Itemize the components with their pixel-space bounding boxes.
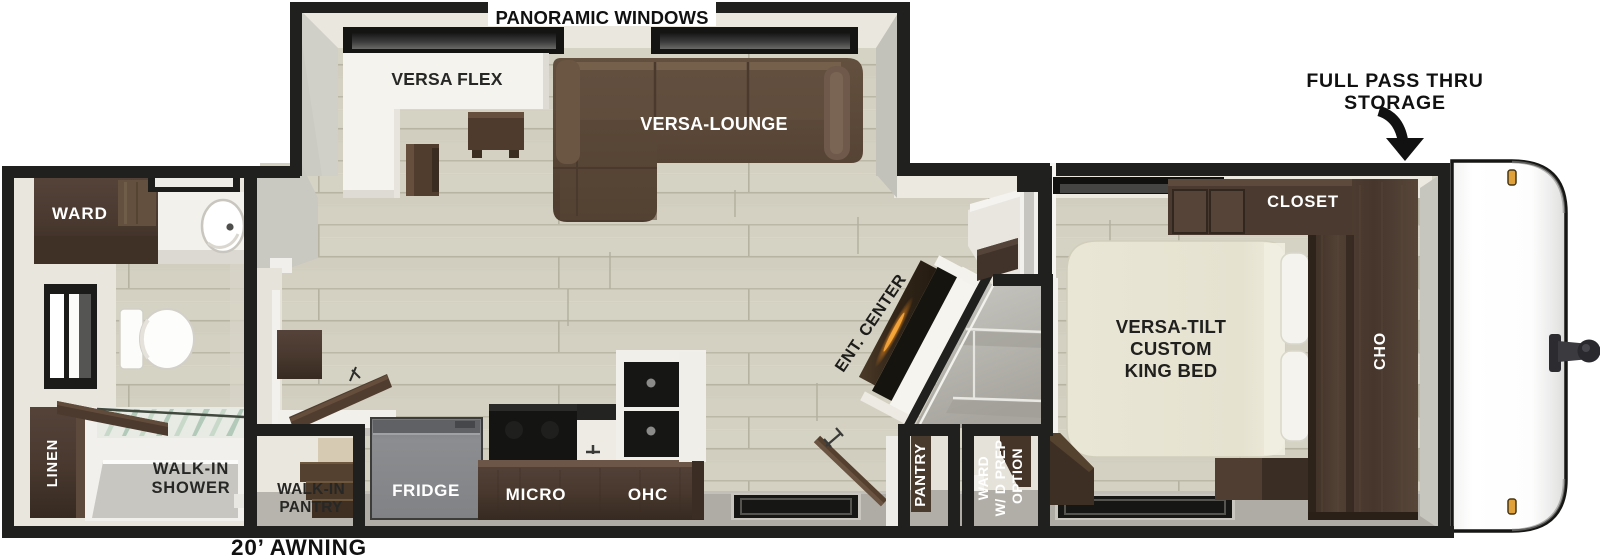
svg-text:PANORAMIC WINDOWS: PANORAMIC WINDOWS	[495, 7, 708, 28]
svg-text:WALK-IN: WALK-IN	[153, 460, 229, 478]
svg-text:VERSA-TILT: VERSA-TILT	[1116, 316, 1227, 337]
svg-text:CHO: CHO	[1372, 332, 1389, 370]
svg-text:OHC: OHC	[628, 485, 668, 504]
svg-text:FRIDGE: FRIDGE	[392, 481, 460, 500]
svg-text:SHOWER: SHOWER	[151, 479, 230, 497]
svg-text:W/ D PREP: W/ D PREP	[992, 440, 1008, 517]
svg-text:WARD: WARD	[52, 204, 108, 223]
svg-text:LINEN: LINEN	[45, 439, 61, 488]
svg-text:MICRO: MICRO	[506, 485, 567, 504]
svg-text:WALK-IN: WALK-IN	[277, 481, 345, 498]
svg-text:VERSA-LOUNGE: VERSA-LOUNGE	[640, 114, 787, 134]
svg-text:CUSTOM: CUSTOM	[1130, 338, 1212, 359]
svg-text:20’ AWNING: 20’ AWNING	[231, 535, 367, 557]
svg-text:OPTION: OPTION	[1009, 448, 1025, 504]
svg-text:KING BED: KING BED	[1125, 360, 1218, 381]
svg-text:PANTRY: PANTRY	[912, 443, 929, 507]
svg-text:CLOSET: CLOSET	[1267, 193, 1339, 211]
svg-text:FULL PASS THRU: FULL PASS THRU	[1306, 70, 1483, 92]
svg-text:STORAGE: STORAGE	[1344, 92, 1446, 114]
svg-text:WARD: WARD	[975, 456, 991, 500]
svg-text:VERSA FLEX: VERSA FLEX	[391, 69, 502, 89]
svg-text:PANTRY: PANTRY	[279, 499, 343, 516]
